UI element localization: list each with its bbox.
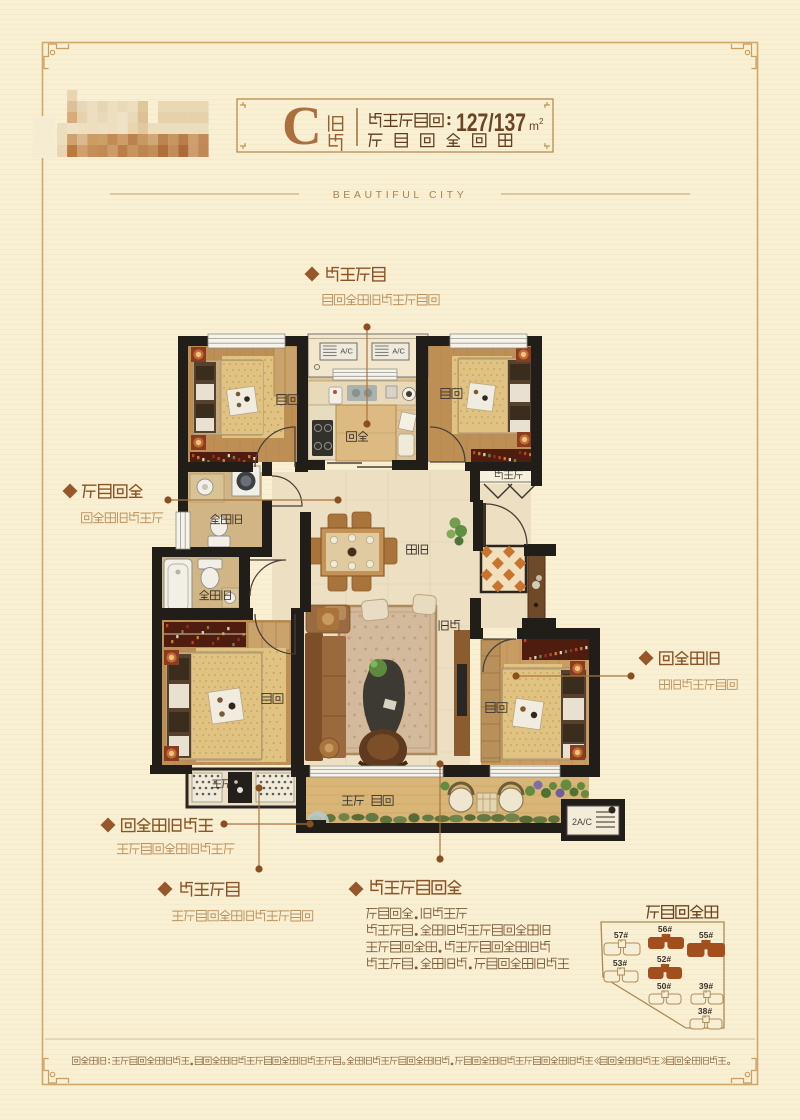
svg-text:56#: 56# [658,924,672,934]
svg-text:39#: 39# [699,981,713,991]
svg-text:127/137: 127/137 [456,109,526,137]
svg-text:50#: 50# [657,981,671,991]
svg-text:55#: 55# [699,930,713,940]
svg-text:53#: 53# [613,958,627,968]
svg-text:A/C: A/C [340,347,353,356]
svg-text:m: m [529,119,539,133]
svg-text:A/C: A/C [392,347,405,356]
svg-text:57#: 57# [614,930,628,940]
svg-text:BEAUTIFUL CITY: BEAUTIFUL CITY [333,189,468,201]
svg-text:52#: 52# [657,954,671,964]
svg-text:C: C [282,95,322,156]
svg-text:38#: 38# [698,1006,712,1016]
svg-text:2: 2 [539,117,544,126]
svg-text:2A/C: 2A/C [572,817,593,827]
